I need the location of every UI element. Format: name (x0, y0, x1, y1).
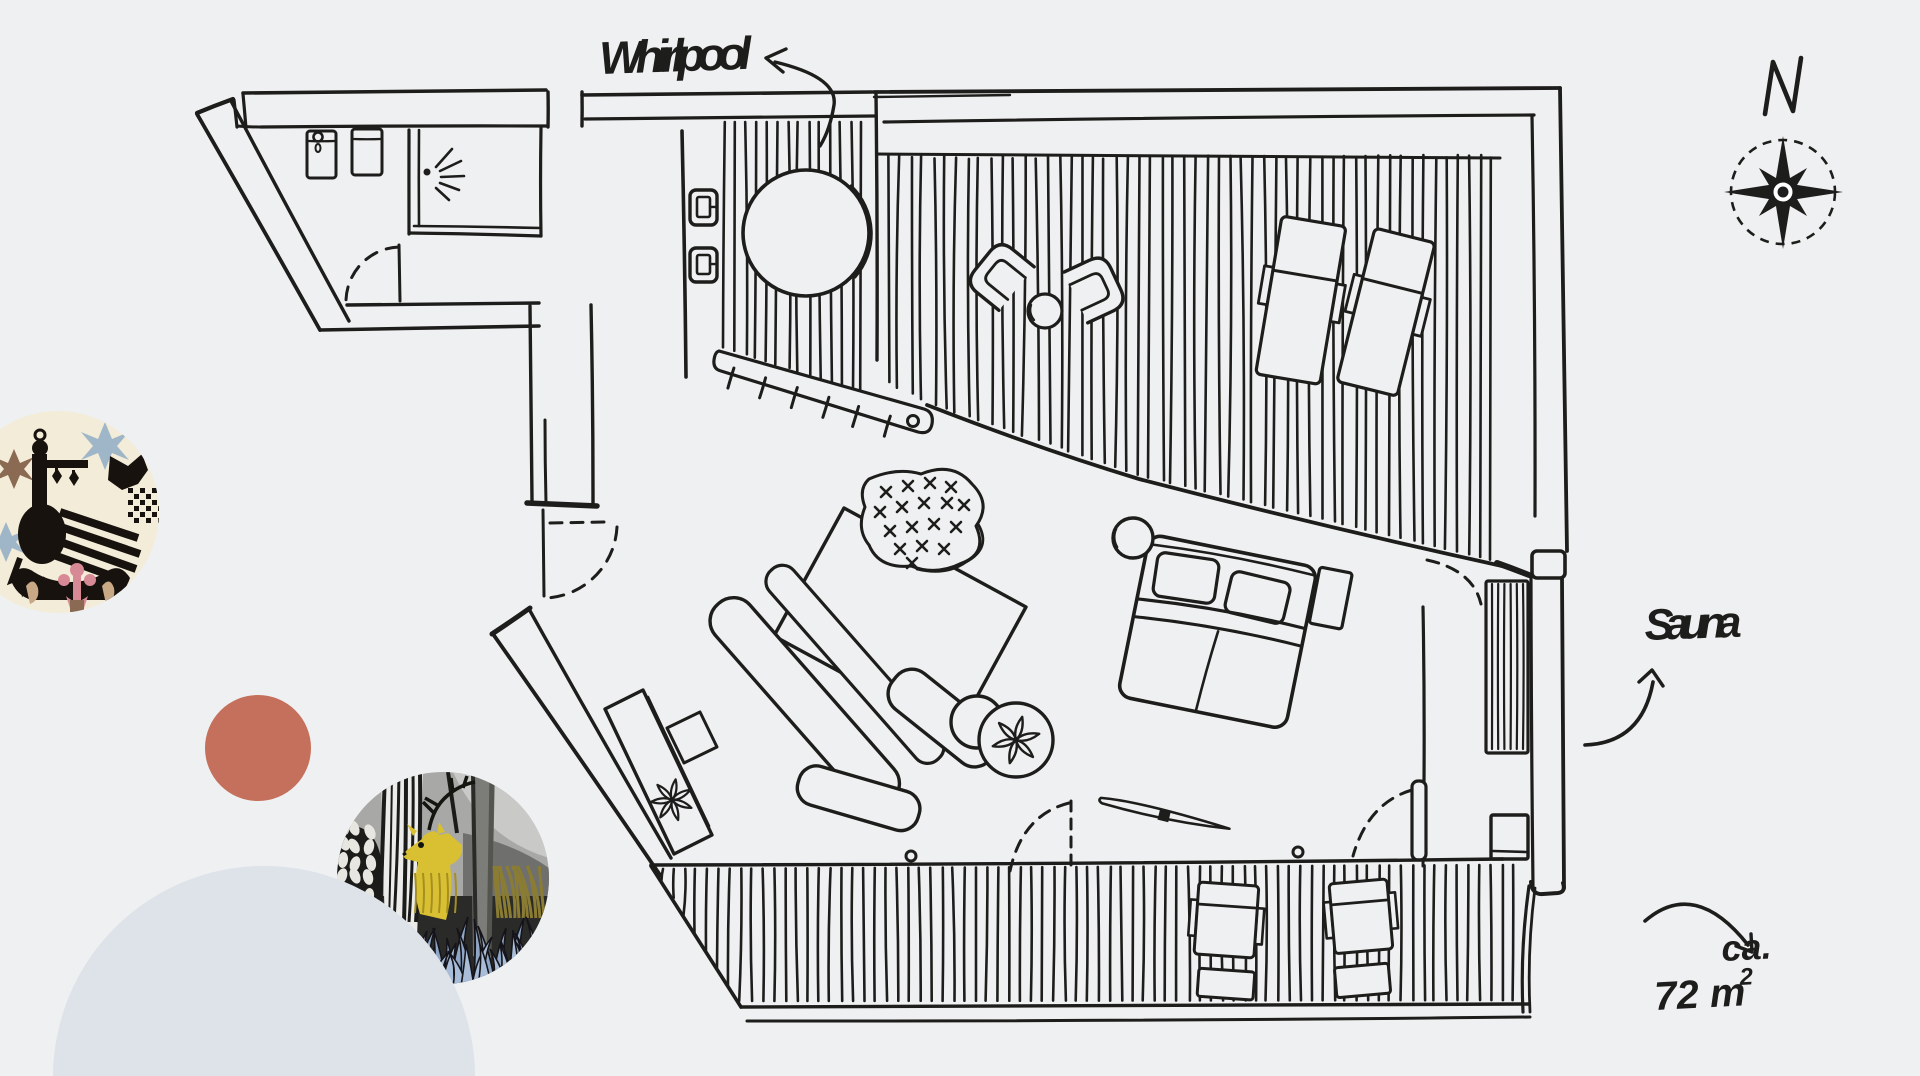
svg-text:ca.: ca. (1720, 925, 1772, 969)
svg-text:Sauna: Sauna (1644, 598, 1743, 650)
svg-text:Whirlpool: Whirlpool (599, 27, 754, 84)
svg-text:2: 2 (1738, 963, 1754, 991)
svg-text:72 m: 72 m (1653, 970, 1746, 1019)
